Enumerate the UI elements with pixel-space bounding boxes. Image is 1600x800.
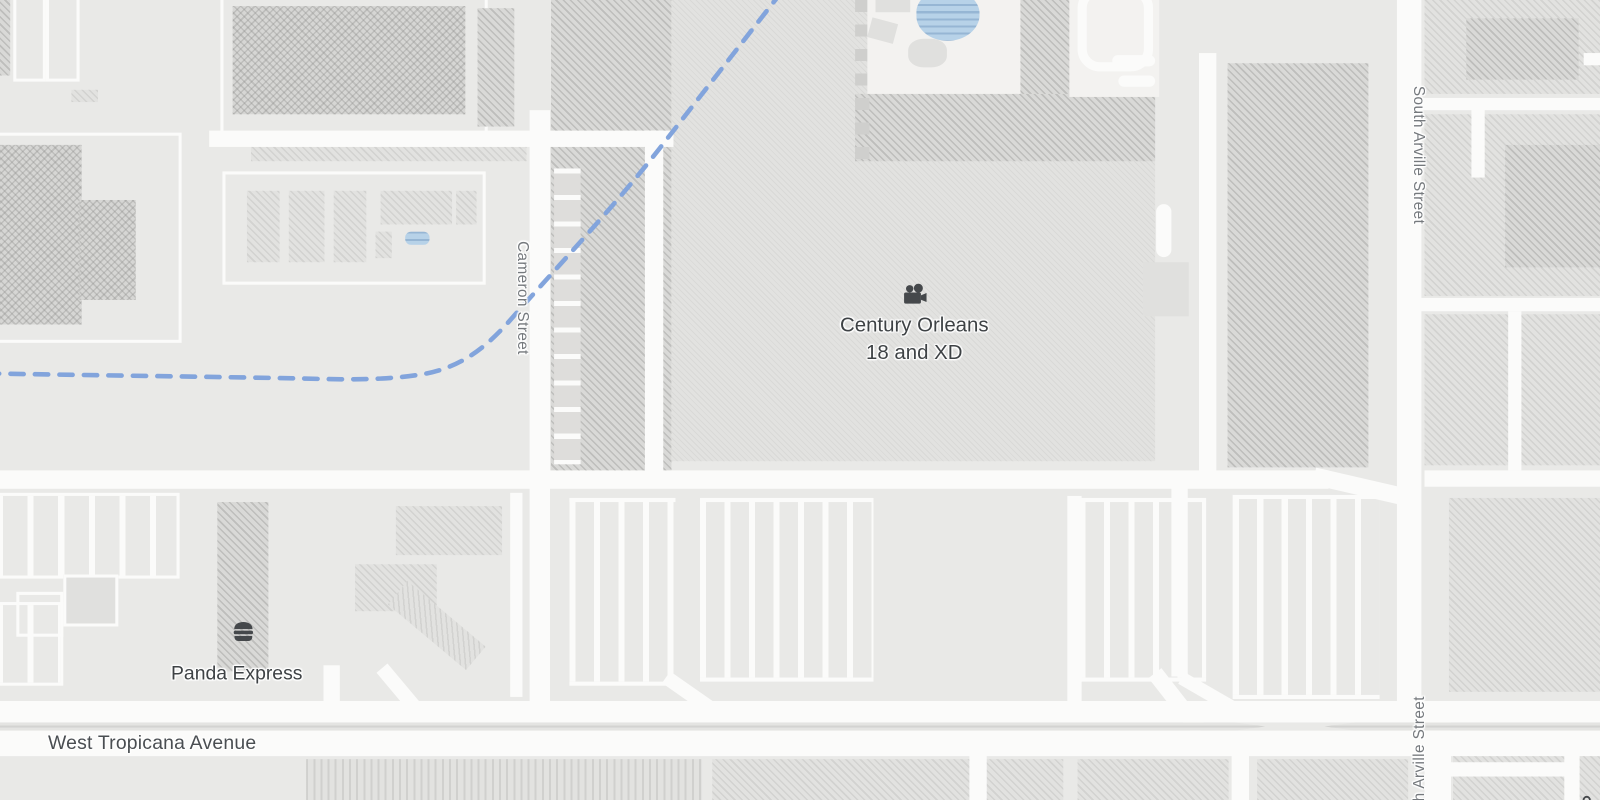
map-viewport: Century Orleans 18 and XD Panda Express … (0, 0, 1600, 800)
restaurant-name: Panda Express (171, 663, 302, 684)
theater-poi-icon[interactable] (902, 284, 928, 305)
street-label-arville-north: South Arville Street (1410, 86, 1427, 224)
shopping-bag-icon (1576, 795, 1598, 800)
street-label-tropicana: West Tropicana Avenue (48, 733, 256, 755)
movie-camera-icon (902, 284, 928, 305)
theater-name-line1: Century Orleans (840, 312, 989, 340)
restaurant-poi-icon[interactable] (232, 620, 255, 642)
theater-name-line2: 18 and XD (840, 340, 989, 368)
store-poi-icon[interactable] (1576, 795, 1598, 800)
restaurant-poi-label[interactable]: Panda Express (171, 663, 302, 685)
hamburger-icon (232, 620, 255, 642)
street-label-arville-south: South Arville Street (1411, 696, 1428, 800)
theater-poi-label[interactable]: Century Orleans 18 and XD (840, 312, 989, 367)
map-canvas[interactable]: Century Orleans 18 and XD Panda Express … (0, 0, 1600, 800)
street-label-cameron: Cameron Street (514, 241, 531, 355)
